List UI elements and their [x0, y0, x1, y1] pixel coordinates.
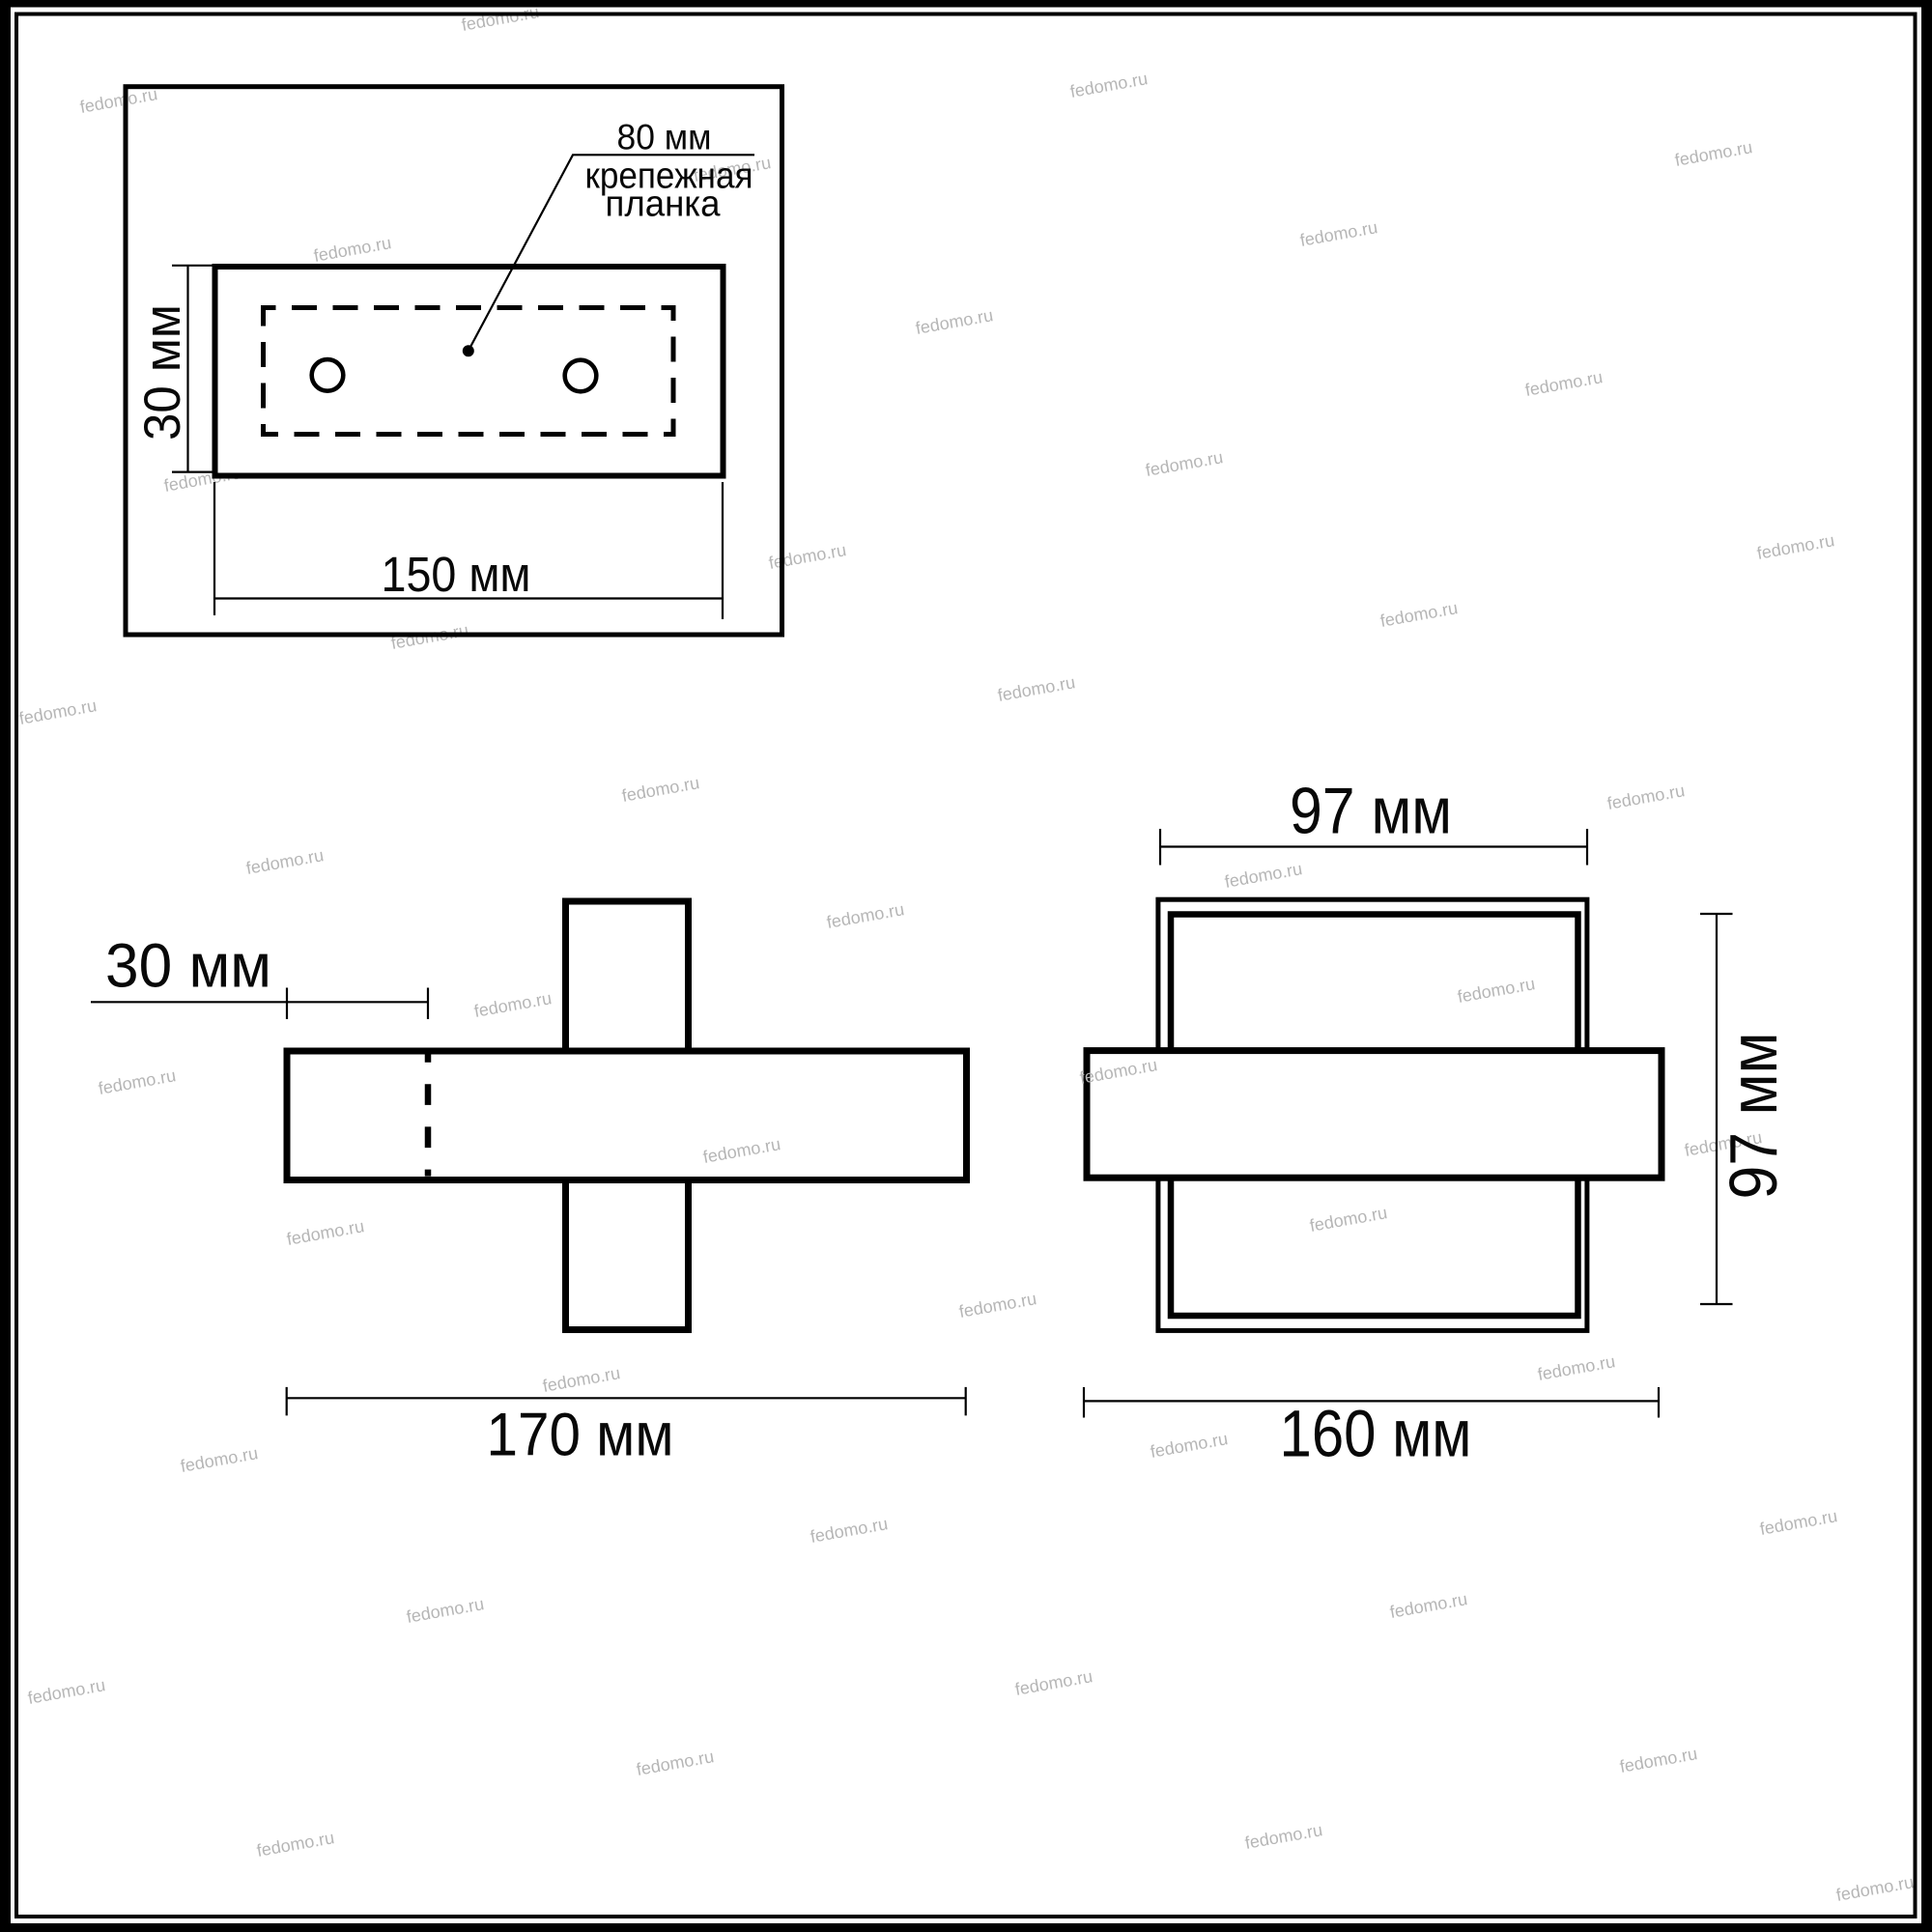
svg-text:30 мм: 30 мм: [105, 931, 271, 1001]
svg-text:97 мм: 97 мм: [1716, 1033, 1791, 1200]
svg-text:150 мм: 150 мм: [382, 547, 531, 602]
svg-text:30 мм: 30 мм: [134, 304, 191, 440]
svg-text:планка: планка: [606, 185, 722, 225]
svg-text:160 мм: 160 мм: [1280, 1397, 1472, 1471]
svg-text:80 мм: 80 мм: [617, 118, 712, 157]
svg-text:97 мм: 97 мм: [1290, 774, 1452, 847]
svg-text:170 мм: 170 мм: [487, 1402, 674, 1469]
